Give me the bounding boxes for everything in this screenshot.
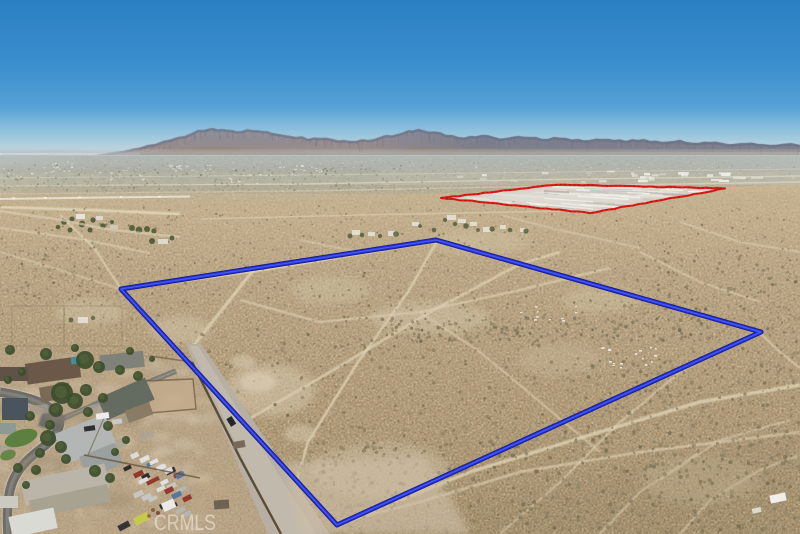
svg-text:CRMLS: CRMLS — [154, 510, 216, 534]
